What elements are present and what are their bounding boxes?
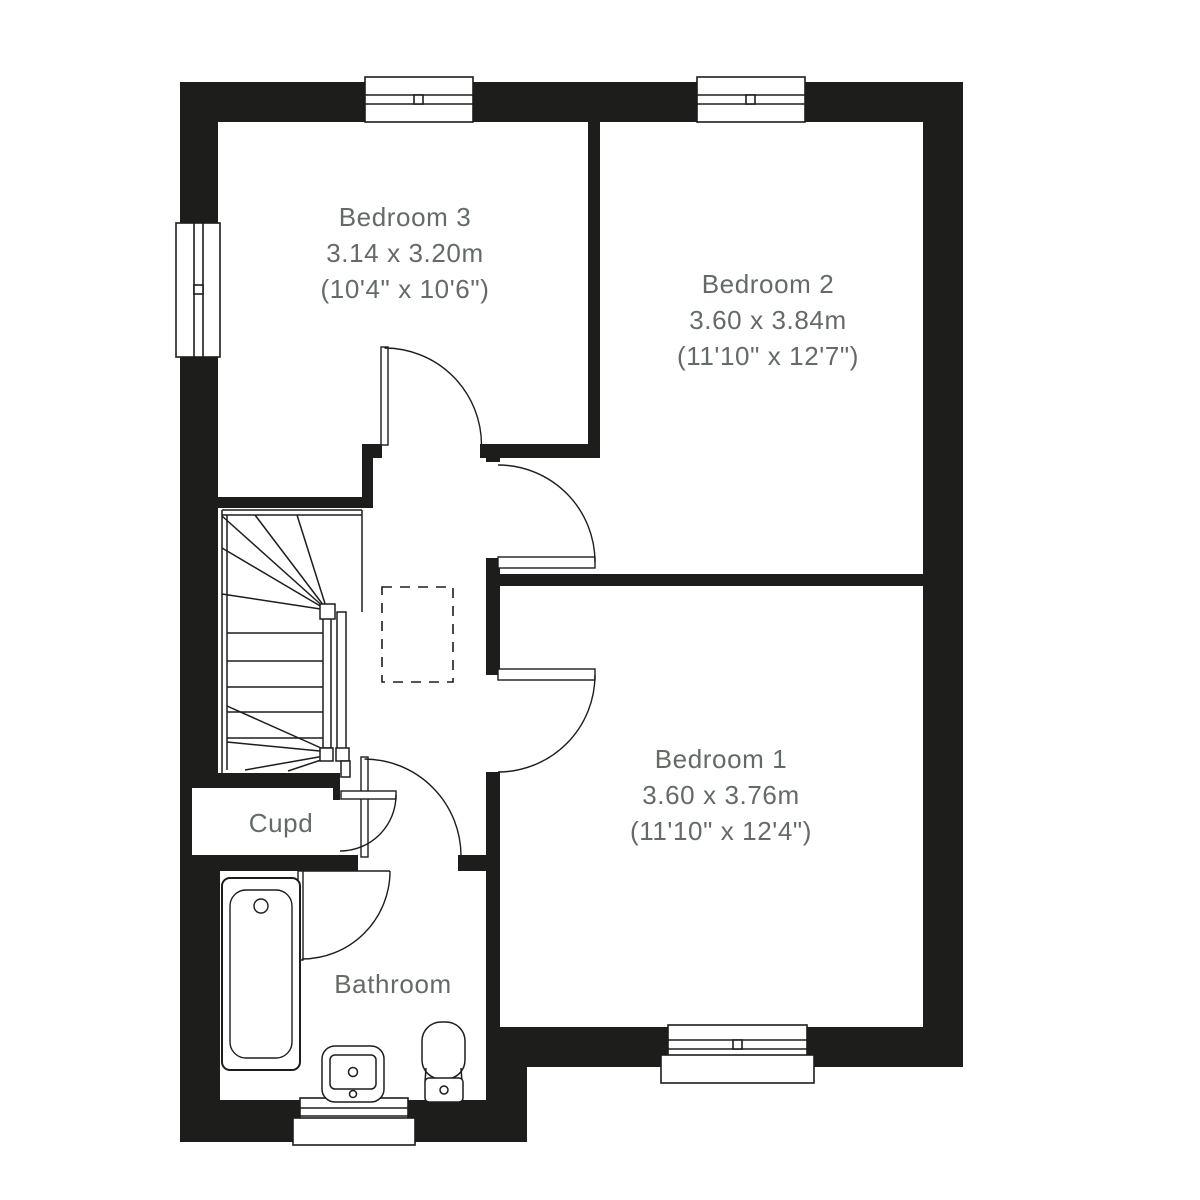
room-label-bathroom: Bathroom [334,966,452,1002]
window-bedroom1-bottom-icon [661,1025,814,1083]
bedroom3-door-icon [381,347,482,445]
newel-post-bottom-right [336,748,349,761]
room-name: Cupd [249,805,314,841]
room-label-bedroom-2: Bedroom 2 3.60 x 3.84m (11'10" x 12'7") [677,266,859,374]
room-size-metric: 3.60 x 3.76m [630,777,812,813]
cupboard-door-opening [331,800,342,855]
room-label-bedroom-1: Bedroom 1 3.60 x 3.76m (11'10" x 12'4") [630,741,812,849]
bath-icon [222,878,300,1070]
floor-plan: Bedroom 3 3.14 x 3.20m (10'4" x 10'6") B… [0,0,1200,1200]
room-size-metric: 3.14 x 3.20m [321,235,490,271]
room-name: Bedroom 3 [321,199,490,235]
room-size-metric: 3.60 x 3.84m [677,302,859,338]
window-bathroom-bottom-icon [293,1098,415,1145]
bath-screen-icon [298,871,390,960]
room-name: Bedroom 2 [677,266,859,302]
room-size-imperial: (11'10" x 12'7") [677,338,859,374]
bedroom3-door-opening [382,442,480,460]
room-name: Bedroom 1 [630,741,812,777]
window-bedroom2-top-icon [697,77,805,122]
room-label-cupboard: Cupd [249,805,314,841]
room-size-imperial: (11'10" x 12'4") [630,813,812,849]
room-label-bedroom-3: Bedroom 3 3.14 x 3.20m (10'4" x 10'6") [321,199,490,307]
room-name: Bathroom [334,966,452,1002]
bedroom2-door-icon [498,465,595,568]
floor-plan-drawing [0,0,1200,1200]
toilet-icon [422,1022,465,1102]
newel-post-bottom-left [320,748,333,761]
window-bedroom3-top-icon [365,77,473,122]
bathroom-door-opening [358,853,458,873]
loft-hatch-icon [382,587,453,682]
bedroom1-door-opening [483,675,503,772]
window-bedroom3-left-icon [176,223,220,357]
bedroom2-door-opening [483,462,503,558]
bedroom1-door-icon [498,669,595,772]
newel-post-top [320,604,335,619]
room-size-imperial: (10'4" x 10'6") [321,271,490,307]
bathroom-door-icon [361,757,461,857]
stairs [222,510,362,777]
basin-icon [322,1046,384,1102]
